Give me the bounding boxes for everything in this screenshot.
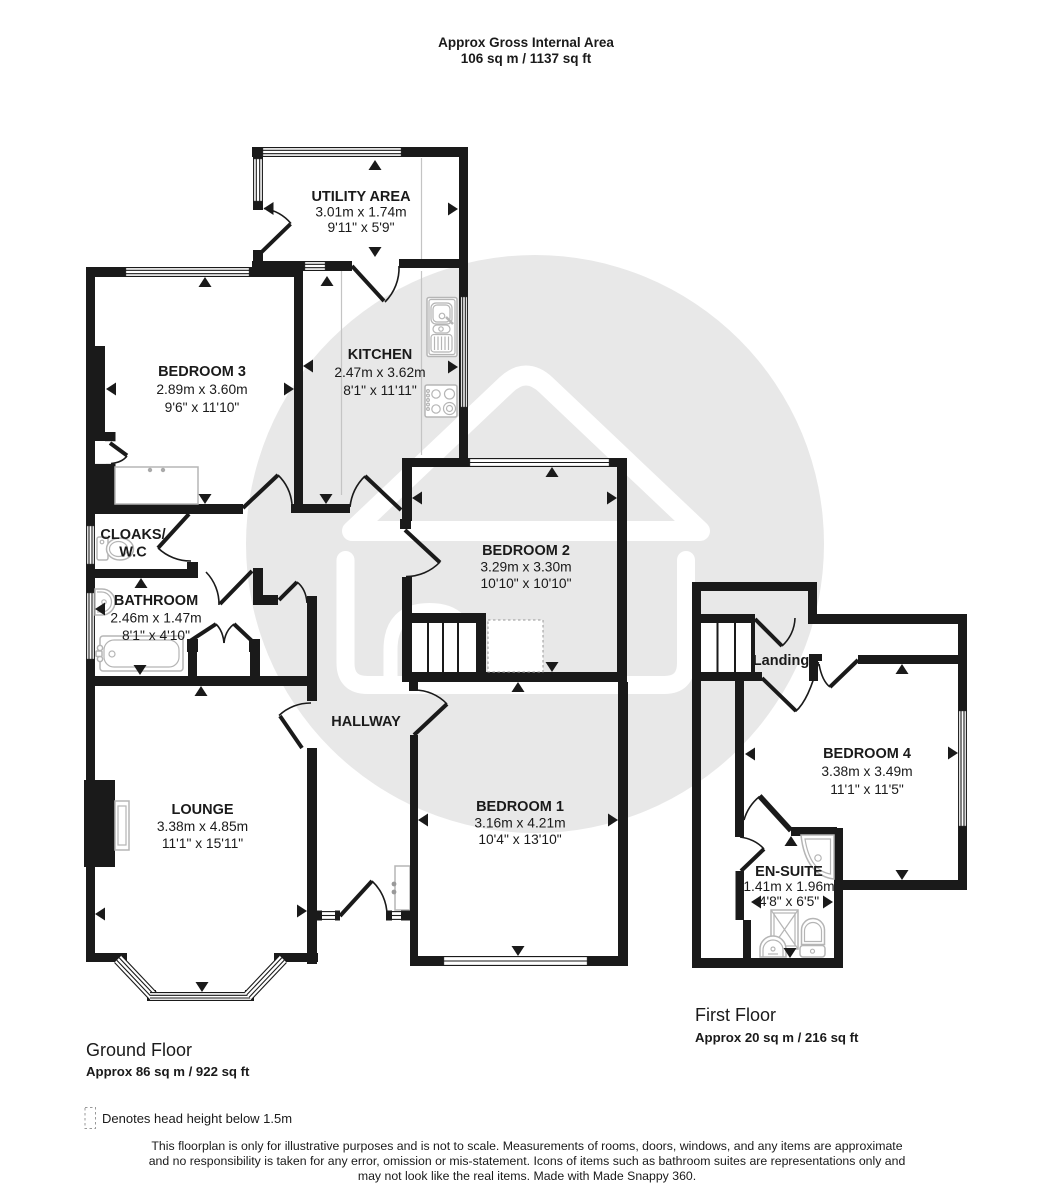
svg-text:3.29m x 3.30m: 3.29m x 3.30m bbox=[480, 560, 571, 575]
svg-text:BEDROOM 4: BEDROOM 4 bbox=[823, 746, 911, 762]
svg-text:10'10" x 10'10": 10'10" x 10'10" bbox=[480, 576, 571, 591]
svg-text:2.46m x 1.47m: 2.46m x 1.47m bbox=[110, 611, 201, 626]
svg-text:10'4" x 13'10": 10'4" x 13'10" bbox=[478, 832, 561, 847]
svg-text:First Floor: First Floor bbox=[695, 1005, 776, 1025]
svg-text:BATHROOM: BATHROOM bbox=[114, 593, 198, 609]
svg-text:Denotes head height below 1.5m: Denotes head height below 1.5m bbox=[102, 1111, 292, 1126]
svg-text:11'1" x 11'5": 11'1" x 11'5" bbox=[830, 782, 904, 797]
svg-text:BEDROOM 2: BEDROOM 2 bbox=[482, 543, 570, 559]
svg-text:2.47m x 3.62m: 2.47m x 3.62m bbox=[334, 365, 425, 380]
svg-text:9'11" x 5'9": 9'11" x 5'9" bbox=[328, 220, 395, 235]
svg-text:9'6" x 11'10": 9'6" x 11'10" bbox=[165, 400, 240, 415]
svg-text:3.01m x 1.74m: 3.01m x 1.74m bbox=[315, 205, 406, 220]
svg-text:Approx 20 sq m / 216 sq ft: Approx 20 sq m / 216 sq ft bbox=[695, 1030, 859, 1045]
svg-text:UTILITY AREA: UTILITY AREA bbox=[311, 189, 411, 205]
svg-text:LOUNGE: LOUNGE bbox=[171, 802, 233, 818]
svg-text:and no responsibility is taken: and no responsibility is taken for any e… bbox=[149, 1154, 906, 1168]
svg-text:3.38m x 3.49m: 3.38m x 3.49m bbox=[821, 764, 912, 779]
svg-text:BEDROOM 3: BEDROOM 3 bbox=[158, 364, 246, 380]
svg-text:8'1" x 11'11": 8'1" x 11'11" bbox=[343, 383, 417, 398]
svg-text:3.38m x 4.85m: 3.38m x 4.85m bbox=[157, 819, 248, 834]
svg-text:KITCHEN: KITCHEN bbox=[348, 347, 412, 363]
svg-text:3.16m x 4.21m: 3.16m x 4.21m bbox=[474, 816, 565, 831]
svg-text:4'8" x 6'5": 4'8" x 6'5" bbox=[759, 894, 819, 909]
svg-text:CLOAKS/: CLOAKS/ bbox=[100, 527, 165, 543]
svg-text:EN-SUITE: EN-SUITE bbox=[755, 864, 823, 880]
svg-text:Ground Floor: Ground Floor bbox=[86, 1040, 192, 1060]
svg-text:Landing: Landing bbox=[753, 653, 809, 669]
svg-text:11'1" x 15'11": 11'1" x 15'11" bbox=[162, 836, 243, 851]
svg-text:1.41m x 1.96m: 1.41m x 1.96m bbox=[743, 879, 834, 894]
svg-text:2.89m x 3.60m: 2.89m x 3.60m bbox=[156, 382, 247, 397]
svg-text:W.C: W.C bbox=[119, 545, 147, 561]
svg-text:This floorplan is only for ill: This floorplan is only for illustrative … bbox=[151, 1139, 902, 1153]
svg-text:8'1" x 4'10": 8'1" x 4'10" bbox=[122, 628, 190, 643]
svg-text:Approx 86 sq m / 922 sq ft: Approx 86 sq m / 922 sq ft bbox=[86, 1064, 250, 1079]
svg-text:BEDROOM 1: BEDROOM 1 bbox=[476, 799, 564, 815]
svg-text:HALLWAY: HALLWAY bbox=[331, 714, 401, 730]
svg-text:may not look like the real ite: may not look like the real items. Made w… bbox=[358, 1169, 696, 1183]
